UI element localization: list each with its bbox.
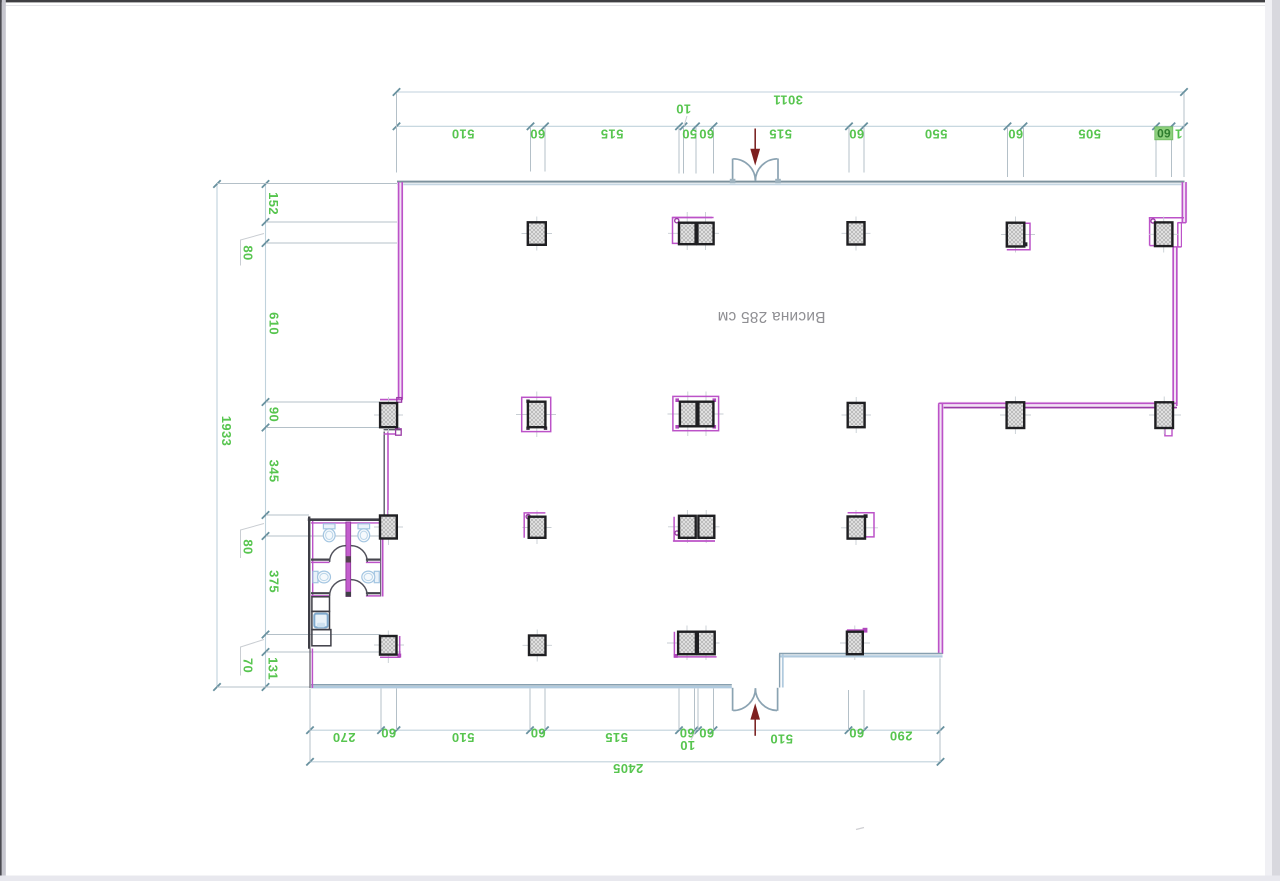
svg-text:60: 60	[699, 726, 714, 741]
svg-text:290: 290	[890, 729, 913, 744]
svg-text:10: 10	[680, 738, 695, 753]
svg-text:510: 510	[770, 732, 793, 747]
svg-text:10: 10	[676, 102, 691, 117]
svg-text:1: 1	[1175, 127, 1183, 142]
svg-text:515: 515	[769, 127, 792, 142]
svg-text:270: 270	[333, 730, 356, 745]
svg-text:1933: 1933	[219, 416, 234, 447]
svg-text:152: 152	[266, 192, 281, 215]
svg-text:550: 550	[925, 127, 948, 142]
svg-text:345: 345	[267, 460, 282, 483]
svg-text:90: 90	[267, 407, 282, 422]
svg-text:60: 60	[1008, 127, 1023, 142]
svg-text:510: 510	[452, 730, 475, 745]
svg-text:60: 60	[530, 127, 545, 142]
svg-text:375: 375	[267, 570, 282, 593]
svg-text:60: 60	[381, 726, 396, 741]
svg-text:2405: 2405	[613, 761, 644, 776]
svg-text:60: 60	[1157, 126, 1171, 140]
svg-text:80: 80	[241, 245, 256, 260]
svg-text:3011: 3011	[773, 93, 803, 108]
svg-text:131: 131	[266, 657, 281, 680]
svg-text:60: 60	[530, 726, 545, 741]
svg-text:515: 515	[601, 127, 624, 142]
svg-text:60: 60	[849, 726, 864, 741]
svg-text:515: 515	[605, 730, 628, 745]
svg-text:50: 50	[682, 127, 697, 142]
svg-text:Висина 285 см: Висина 285 см	[717, 308, 825, 325]
svg-text:505: 505	[1078, 127, 1101, 142]
svg-text:510: 510	[452, 127, 475, 142]
svg-text:60: 60	[699, 127, 714, 142]
svg-text:610: 610	[267, 312, 282, 335]
svg-text:80: 80	[241, 539, 256, 554]
svg-text:60: 60	[849, 127, 864, 142]
svg-text:70: 70	[241, 658, 256, 673]
